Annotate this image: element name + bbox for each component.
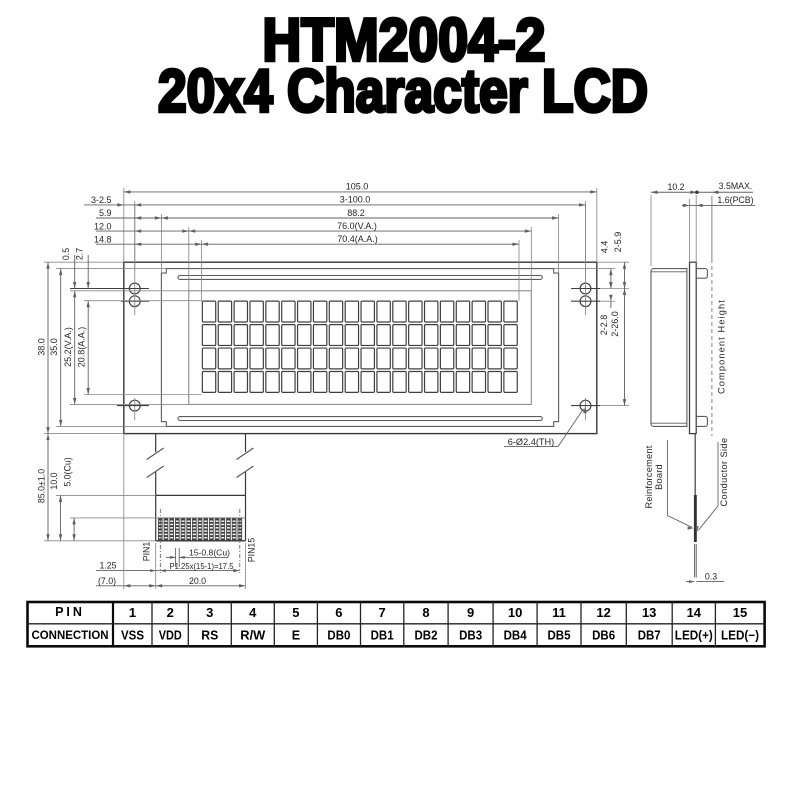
svg-text:PIN: PIN: [55, 605, 85, 619]
svg-text:6-Ø2.4(TH): 6-Ø2.4(TH): [508, 437, 554, 447]
svg-text:2-5.9: 2-5.9: [613, 232, 623, 253]
svg-text:E: E: [292, 629, 300, 643]
svg-text:VSS: VSS: [121, 629, 144, 643]
svg-text:70.4(A.A.): 70.4(A.A.): [337, 234, 378, 244]
svg-text:5.9: 5.9: [99, 208, 112, 218]
svg-text:76.0(V.A.): 76.0(V.A.): [337, 221, 377, 231]
svg-text:14.8: 14.8: [94, 234, 112, 244]
svg-text:DB5: DB5: [548, 629, 571, 643]
svg-text:R/W: R/W: [240, 629, 265, 643]
svg-text:2: 2: [167, 605, 174, 620]
svg-text:DB0: DB0: [327, 629, 350, 643]
svg-text:10: 10: [508, 605, 522, 620]
svg-text:12.0: 12.0: [94, 221, 112, 231]
svg-text:2-26.0: 2-26.0: [610, 311, 620, 337]
svg-text:12: 12: [596, 605, 610, 620]
svg-text:38.0: 38.0: [37, 338, 47, 356]
svg-text:Conductor Side: Conductor Side: [719, 438, 729, 507]
svg-text:13: 13: [642, 605, 656, 620]
svg-text:14: 14: [687, 605, 702, 620]
svg-text:105.0: 105.0: [346, 182, 369, 192]
svg-text:0.5: 0.5: [61, 248, 71, 260]
svg-text:4.4: 4.4: [599, 241, 609, 254]
svg-text:15-0.8(Cu): 15-0.8(Cu): [189, 547, 230, 557]
svg-text:3-100.0: 3-100.0: [340, 195, 371, 205]
svg-text:3.5MAX.: 3.5MAX.: [719, 181, 753, 191]
svg-text:20.8(A.A.): 20.8(A.A.): [77, 327, 87, 368]
svg-text:LED(+): LED(+): [675, 629, 713, 643]
svg-text:2-2.8: 2-2.8: [599, 315, 609, 336]
svg-text:35.0: 35.0: [49, 338, 59, 356]
svg-text:0.3: 0.3: [705, 572, 717, 582]
svg-text:LED(−): LED(−): [721, 629, 759, 643]
svg-text:20.0: 20.0: [189, 576, 206, 586]
svg-text:10.0: 10.0: [49, 472, 59, 489]
svg-text:9: 9: [467, 605, 474, 620]
svg-text:3: 3: [206, 605, 213, 620]
svg-text:CONNECTION: CONNECTION: [32, 628, 109, 642]
svg-text:8: 8: [422, 605, 429, 620]
svg-text:11: 11: [552, 605, 566, 620]
svg-text:DB7: DB7: [638, 629, 661, 643]
svg-text:Reinforcement: Reinforcement: [644, 445, 654, 508]
svg-text:(7.0): (7.0): [98, 576, 116, 586]
svg-text:4: 4: [249, 605, 257, 620]
svg-text:1.6(PCB): 1.6(PCB): [717, 195, 753, 205]
svg-text:7: 7: [378, 605, 385, 620]
svg-text:2.7: 2.7: [74, 248, 84, 260]
svg-text:DB2: DB2: [415, 629, 438, 643]
svg-text:Component Height: Component Height: [717, 299, 727, 394]
svg-text:P1.25x(15-1)=17.5: P1.25x(15-1)=17.5: [170, 562, 234, 571]
svg-text:VDD: VDD: [159, 629, 182, 643]
svg-text:5: 5: [292, 605, 299, 620]
svg-text:3-2.5: 3-2.5: [91, 195, 112, 205]
svg-text:DB1: DB1: [371, 629, 394, 643]
svg-text:6: 6: [335, 605, 342, 620]
svg-text:DB6: DB6: [592, 629, 615, 643]
svg-text:Board: Board: [654, 464, 664, 490]
svg-text:1: 1: [129, 605, 136, 620]
svg-text:1.25: 1.25: [99, 561, 116, 571]
svg-text:PIN1: PIN1: [142, 542, 152, 562]
svg-text:25.2(V.A.): 25.2(V.A.): [63, 327, 73, 367]
svg-text:10.2: 10.2: [667, 182, 684, 192]
svg-text:15: 15: [733, 605, 747, 620]
svg-text:88.2: 88.2: [347, 208, 365, 218]
svg-text:DB3: DB3: [459, 629, 482, 643]
svg-text:RS: RS: [201, 629, 218, 643]
svg-text:PIN15: PIN15: [247, 538, 257, 563]
svg-text:85.0±1.0: 85.0±1.0: [37, 469, 47, 503]
svg-text:5.0(Cu): 5.0(Cu): [63, 457, 73, 486]
svg-text:20x4 Character LCD: 20x4 Character LCD: [158, 58, 648, 125]
svg-text:DB4: DB4: [504, 629, 527, 643]
